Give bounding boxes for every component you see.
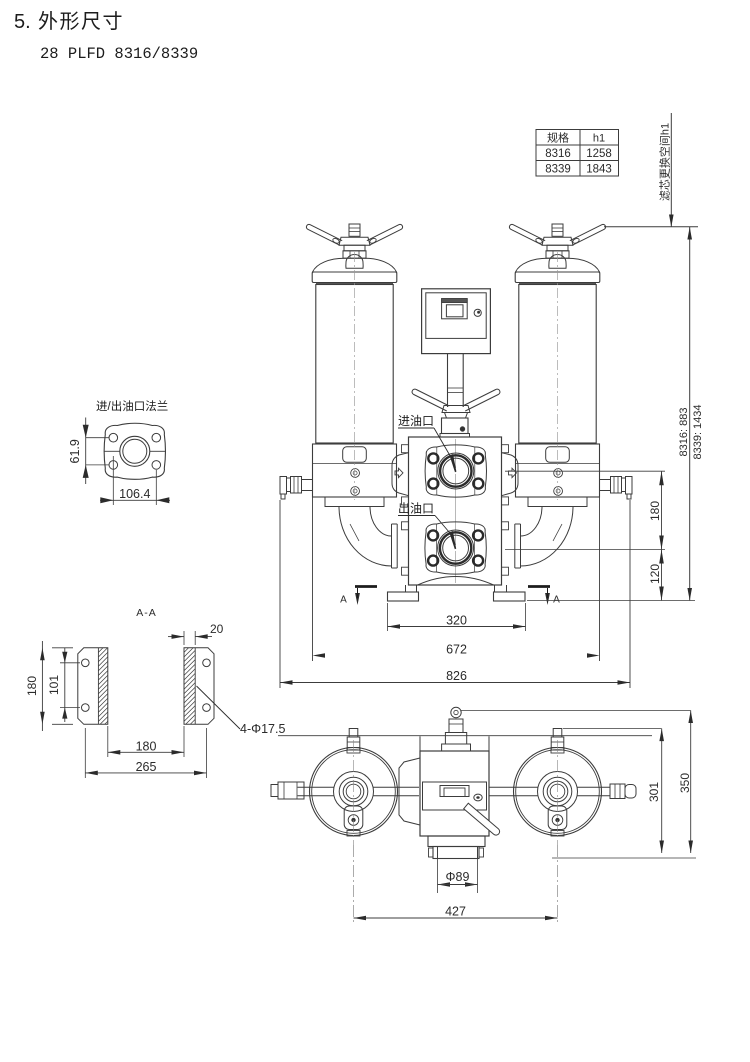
svg-text:进油口: 进油口 xyxy=(398,414,434,428)
svg-text:120: 120 xyxy=(648,564,662,584)
svg-text:8316: 8316 xyxy=(545,148,571,160)
svg-text:672: 672 xyxy=(446,643,467,657)
svg-text:5.: 5. xyxy=(14,11,31,33)
svg-text:Φ89: Φ89 xyxy=(446,870,470,884)
svg-text:8316: 883: 8316: 883 xyxy=(678,408,690,457)
svg-text:进/出油口法兰: 进/出油口法兰 xyxy=(96,399,168,413)
svg-text:20: 20 xyxy=(210,622,224,636)
svg-text:101: 101 xyxy=(47,675,61,695)
svg-text:427: 427 xyxy=(445,905,466,919)
svg-text:A-A: A-A xyxy=(136,607,157,619)
svg-text:A: A xyxy=(340,595,347,606)
svg-text:180: 180 xyxy=(136,739,157,753)
svg-text:1258: 1258 xyxy=(586,148,612,160)
svg-text:滤芯更换空间h1: 滤芯更换空间h1 xyxy=(658,123,672,201)
svg-text:8339: 1434: 8339: 1434 xyxy=(692,404,704,459)
svg-text:106.4: 106.4 xyxy=(119,487,150,501)
svg-text:h1: h1 xyxy=(593,133,605,145)
svg-text:外形尺寸: 外形尺寸 xyxy=(38,10,124,33)
svg-text:4-Φ17.5: 4-Φ17.5 xyxy=(240,722,285,736)
svg-text:265: 265 xyxy=(136,760,157,774)
svg-text:61.9: 61.9 xyxy=(68,439,82,463)
svg-text:180: 180 xyxy=(648,501,662,521)
svg-text:8339: 8339 xyxy=(545,164,571,176)
svg-text:301: 301 xyxy=(647,782,661,802)
svg-text:826: 826 xyxy=(446,669,467,683)
svg-text:28 PLFD 8316/8339: 28 PLFD 8316/8339 xyxy=(40,45,198,63)
svg-text:350: 350 xyxy=(678,773,692,793)
svg-text:规格: 规格 xyxy=(547,131,569,145)
svg-text:320: 320 xyxy=(446,614,467,628)
svg-text:180: 180 xyxy=(25,676,39,696)
svg-text:1843: 1843 xyxy=(586,164,612,176)
svg-text:出油口: 出油口 xyxy=(398,502,434,516)
svg-text:A: A xyxy=(553,595,560,606)
